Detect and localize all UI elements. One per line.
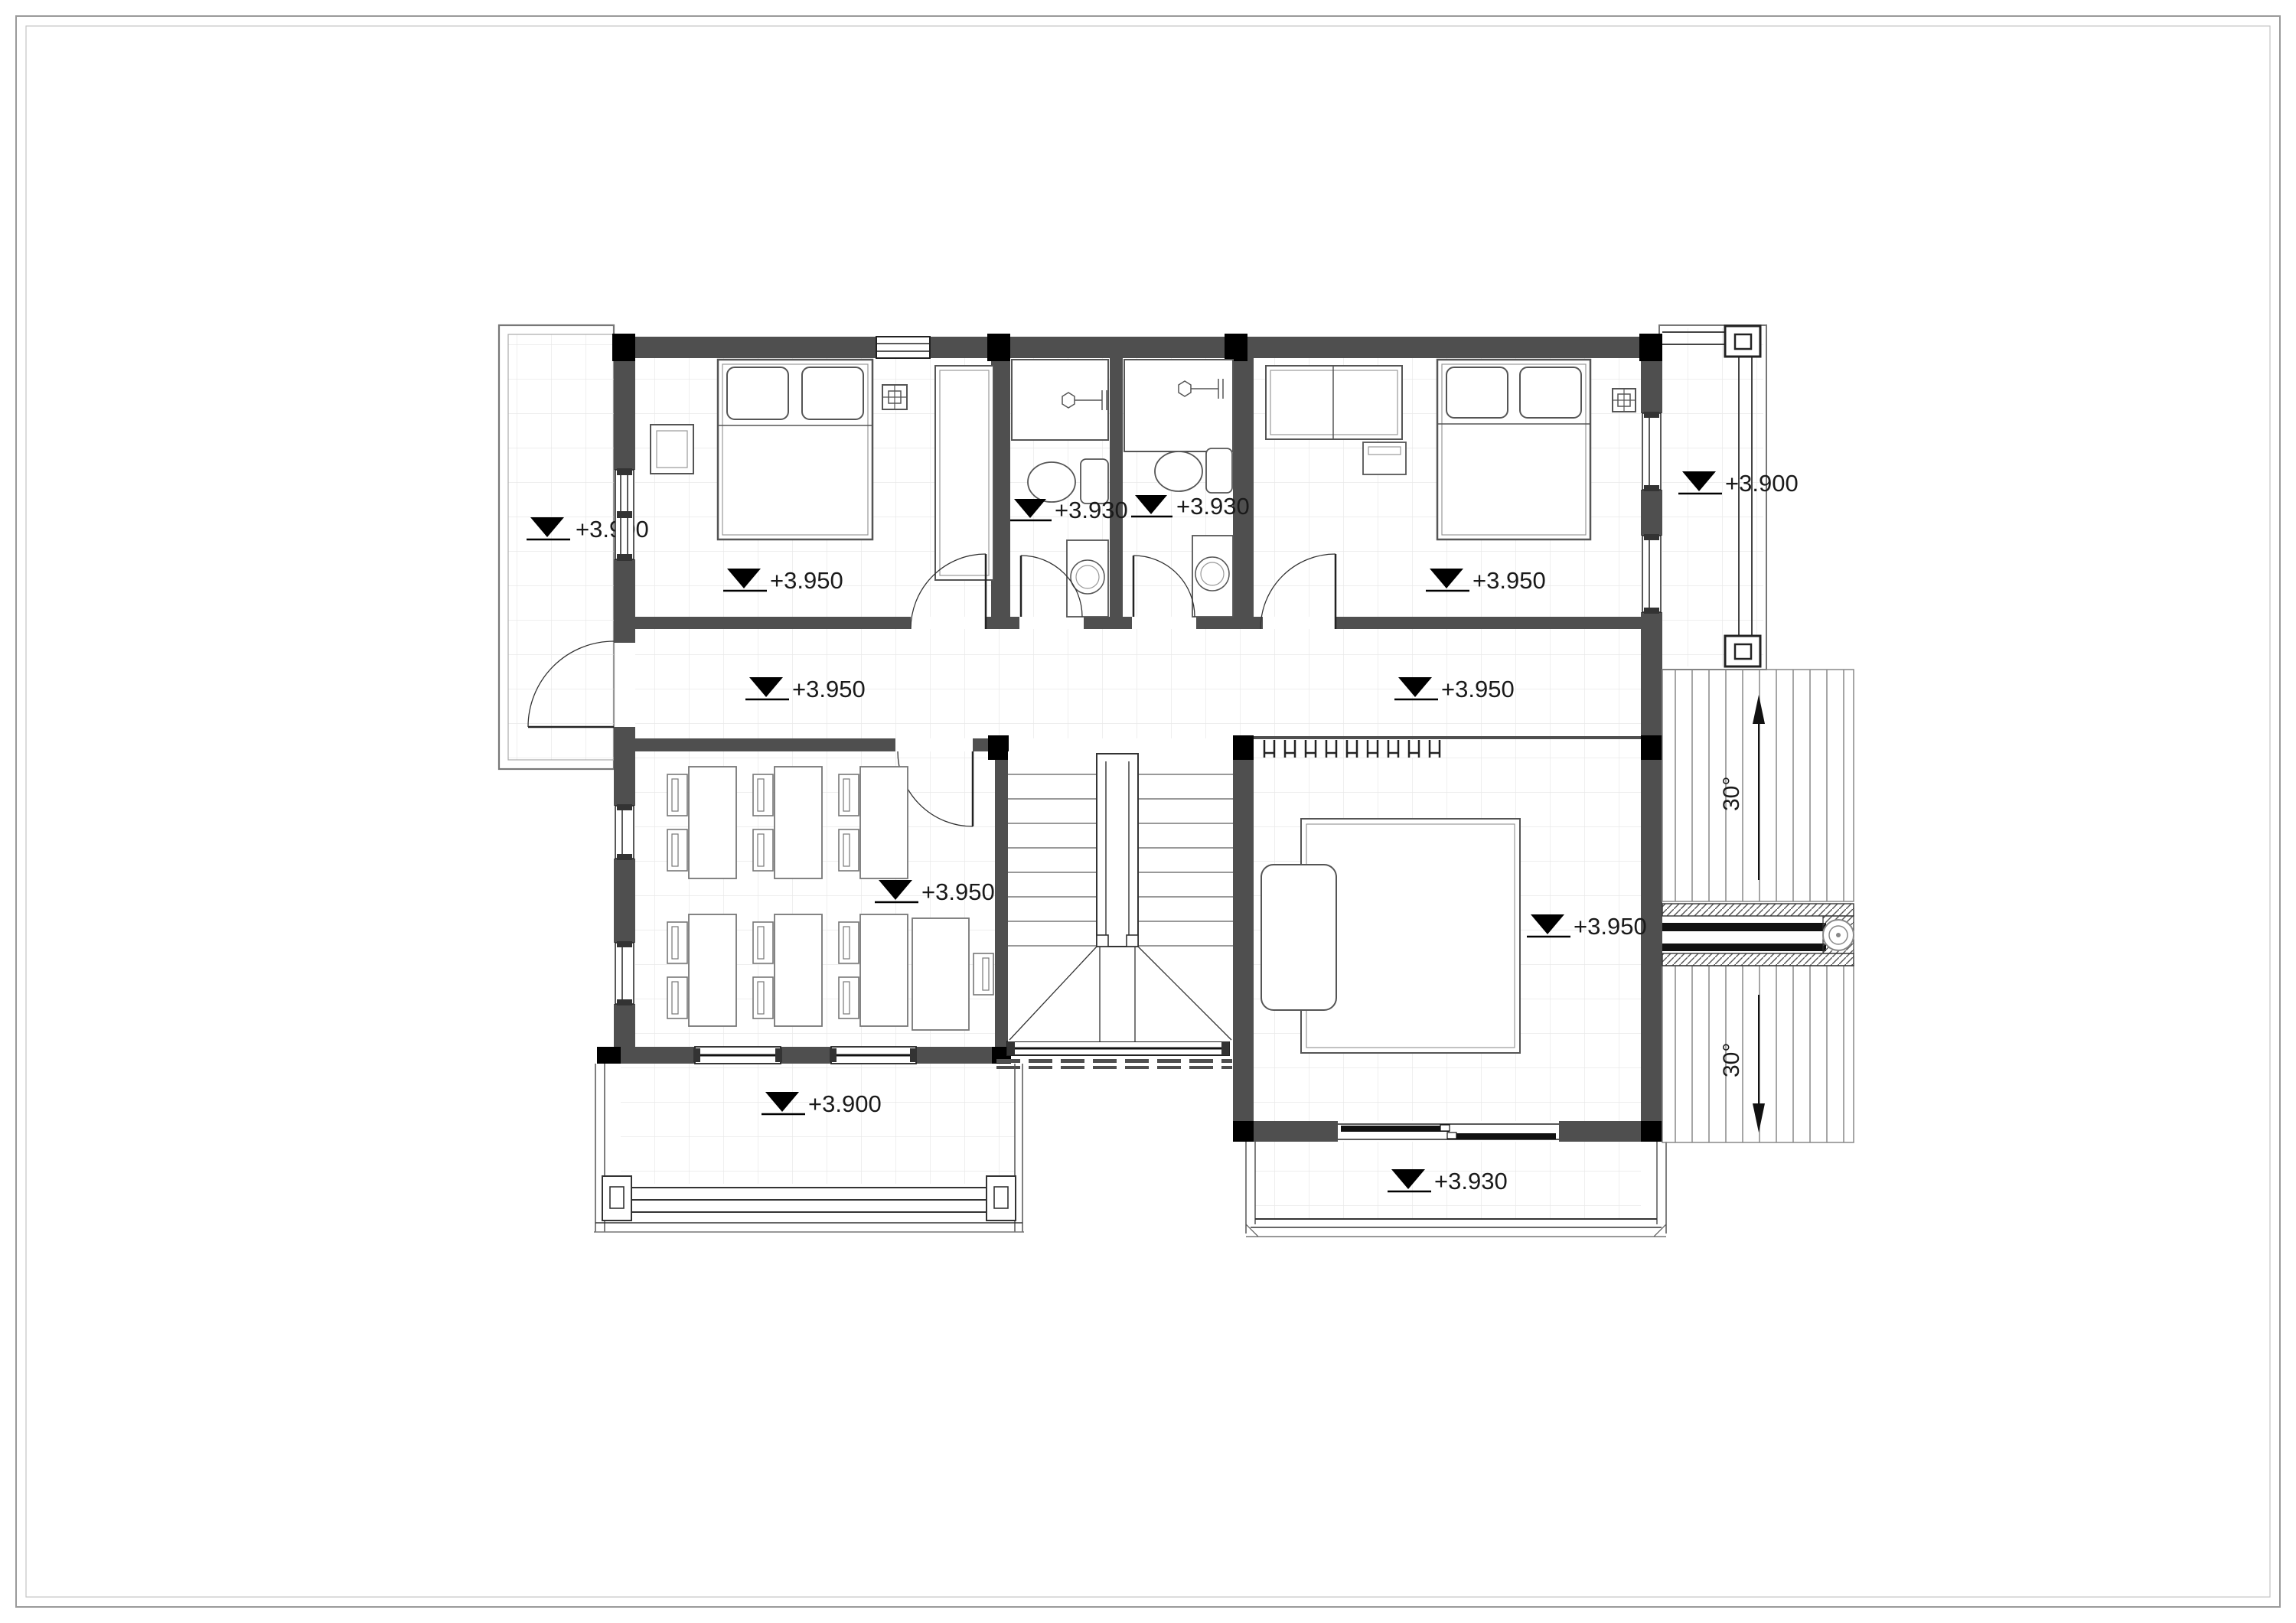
level-text: +3.950 bbox=[1441, 676, 1515, 702]
roof-gutter bbox=[1662, 904, 1854, 966]
closet-rail-icon bbox=[1261, 740, 1446, 758]
level-marker-bedroom-2: +3.950 bbox=[1426, 567, 1546, 594]
window-icon bbox=[876, 337, 930, 358]
floor-plan-svg: +3.900 +3.900 bbox=[0, 0, 2296, 1623]
table-icon bbox=[860, 767, 908, 878]
level-text: +3.950 bbox=[792, 676, 866, 702]
table-icon bbox=[912, 918, 969, 1030]
window-icon bbox=[1642, 412, 1661, 491]
chair-icon bbox=[753, 774, 773, 816]
closet-icon bbox=[1266, 366, 1402, 439]
slope-label: 30° bbox=[1719, 777, 1744, 811]
level-marker-master-bedroom: +3.950 bbox=[1527, 913, 1647, 940]
table-icon bbox=[775, 914, 822, 1026]
level-text: +3.900 bbox=[1725, 470, 1799, 497]
level-text: +3.950 bbox=[1473, 567, 1546, 594]
chair-icon bbox=[753, 829, 773, 871]
stairwell bbox=[995, 751, 1233, 1069]
level-marker-bath-2: +3.930 bbox=[1131, 493, 1250, 520]
level-marker-corridor-west: +3.950 bbox=[745, 676, 866, 702]
window-icon bbox=[615, 804, 634, 860]
chair-icon bbox=[839, 922, 859, 963]
balcony-east: +3.900 bbox=[1659, 325, 1799, 670]
nightstand-icon bbox=[651, 425, 693, 474]
chair-icon bbox=[839, 977, 859, 1018]
shower-icon bbox=[1012, 360, 1108, 440]
window-icon bbox=[1007, 1041, 1229, 1055]
level-marker-bedroom-1: +3.950 bbox=[723, 567, 843, 594]
toilet-icon bbox=[1155, 448, 1232, 493]
level-text: +3.930 bbox=[1055, 497, 1128, 523]
slope-label: 30° bbox=[1719, 1043, 1744, 1077]
level-marker-south-terrace: +3.900 bbox=[762, 1090, 882, 1117]
ceiling-vent-icon bbox=[882, 385, 907, 409]
level-marker-master-balcony: +3.930 bbox=[1388, 1168, 1508, 1194]
stair-divider bbox=[1097, 754, 1138, 947]
window-icon bbox=[615, 941, 634, 1005]
sill-hatch bbox=[995, 1059, 1232, 1069]
chair-icon bbox=[753, 977, 773, 1018]
bed-icon bbox=[718, 360, 872, 539]
sink-icon bbox=[1067, 540, 1108, 617]
table-icon bbox=[775, 767, 822, 878]
chair-icon bbox=[1363, 442, 1406, 474]
chair-icon bbox=[667, 829, 687, 871]
level-text: +3.950 bbox=[770, 567, 843, 594]
window-icon bbox=[1642, 534, 1661, 614]
level-text: +3.930 bbox=[1176, 493, 1250, 520]
level-marker-study: +3.950 bbox=[875, 878, 995, 905]
chair-icon bbox=[974, 953, 993, 995]
wardrobe-icon bbox=[935, 366, 993, 580]
bed-icon bbox=[1437, 360, 1590, 539]
level-text: +3.950 bbox=[921, 878, 995, 905]
ceiling-vent-icon bbox=[1613, 389, 1636, 412]
chair-icon bbox=[667, 977, 687, 1018]
sliding-door-icon bbox=[1338, 1124, 1559, 1139]
chair-icon bbox=[753, 922, 773, 963]
window-icon bbox=[615, 468, 634, 561]
roof-deck: 30° 30° bbox=[1662, 670, 1854, 1142]
window-icon bbox=[830, 1047, 917, 1064]
sink-icon bbox=[1192, 536, 1233, 617]
chair-icon bbox=[839, 829, 859, 871]
table-icon bbox=[860, 914, 908, 1026]
chair-icon bbox=[667, 922, 687, 963]
level-text: +3.950 bbox=[1574, 913, 1647, 940]
level-marker-corridor-east: +3.950 bbox=[1394, 676, 1515, 702]
chair-icon bbox=[839, 774, 859, 816]
level-marker-bath-1: +3.930 bbox=[1010, 497, 1128, 523]
level-text: +3.900 bbox=[808, 1090, 882, 1117]
level-text: +3.930 bbox=[1434, 1168, 1508, 1194]
drawing-sheet: +3.900 +3.900 bbox=[0, 0, 2296, 1623]
window-icon bbox=[693, 1047, 782, 1064]
chair-icon bbox=[667, 774, 687, 816]
table-icon bbox=[689, 914, 736, 1026]
table-icon bbox=[689, 767, 736, 878]
level-marker-east-balcony: +3.900 bbox=[1678, 470, 1799, 497]
shower-icon bbox=[1124, 360, 1233, 451]
